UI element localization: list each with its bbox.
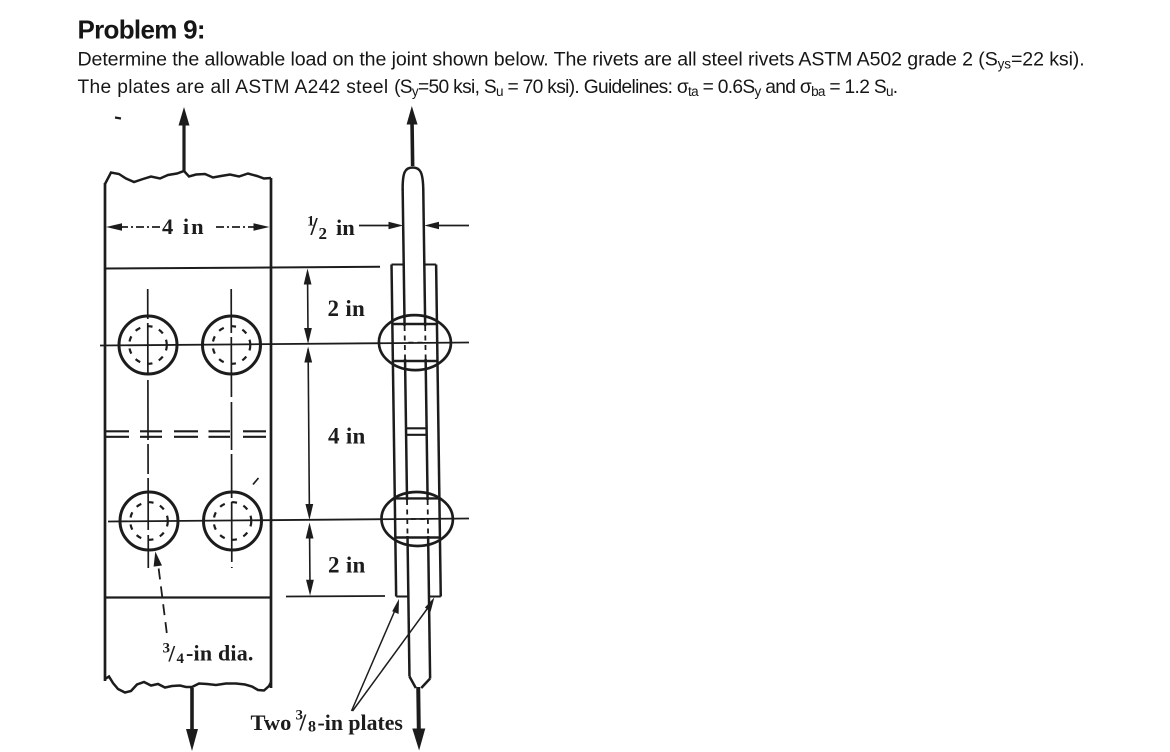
svg-text:/: / (168, 642, 176, 668)
svg-text:8: 8 (308, 719, 316, 736)
svg-text:4 in: 4 in (328, 424, 366, 449)
svg-text:Two: Two (251, 710, 292, 735)
svg-text:4: 4 (177, 651, 185, 667)
svg-text:2 in: 2 in (328, 553, 366, 578)
svg-text:The plates are all ASTM A242 s: The plates are all ASTM A242 steel (Sy=5… (78, 77, 898, 99)
svg-text:Problem 9:: Problem 9: (78, 14, 205, 44)
svg-text:4 in: 4 in (162, 214, 206, 239)
svg-text:in: in (336, 215, 355, 240)
svg-text:-in dia.: -in dia. (186, 641, 254, 666)
svg-text:-in plates: -in plates (318, 711, 403, 735)
svg-text:/: / (299, 711, 307, 737)
svg-text:/: / (310, 212, 319, 241)
svg-text:Determine the allowable load o: Determine the allowable load on the join… (78, 49, 1085, 72)
svg-text:2 in: 2 in (328, 296, 366, 321)
svg-text:2: 2 (319, 224, 328, 243)
